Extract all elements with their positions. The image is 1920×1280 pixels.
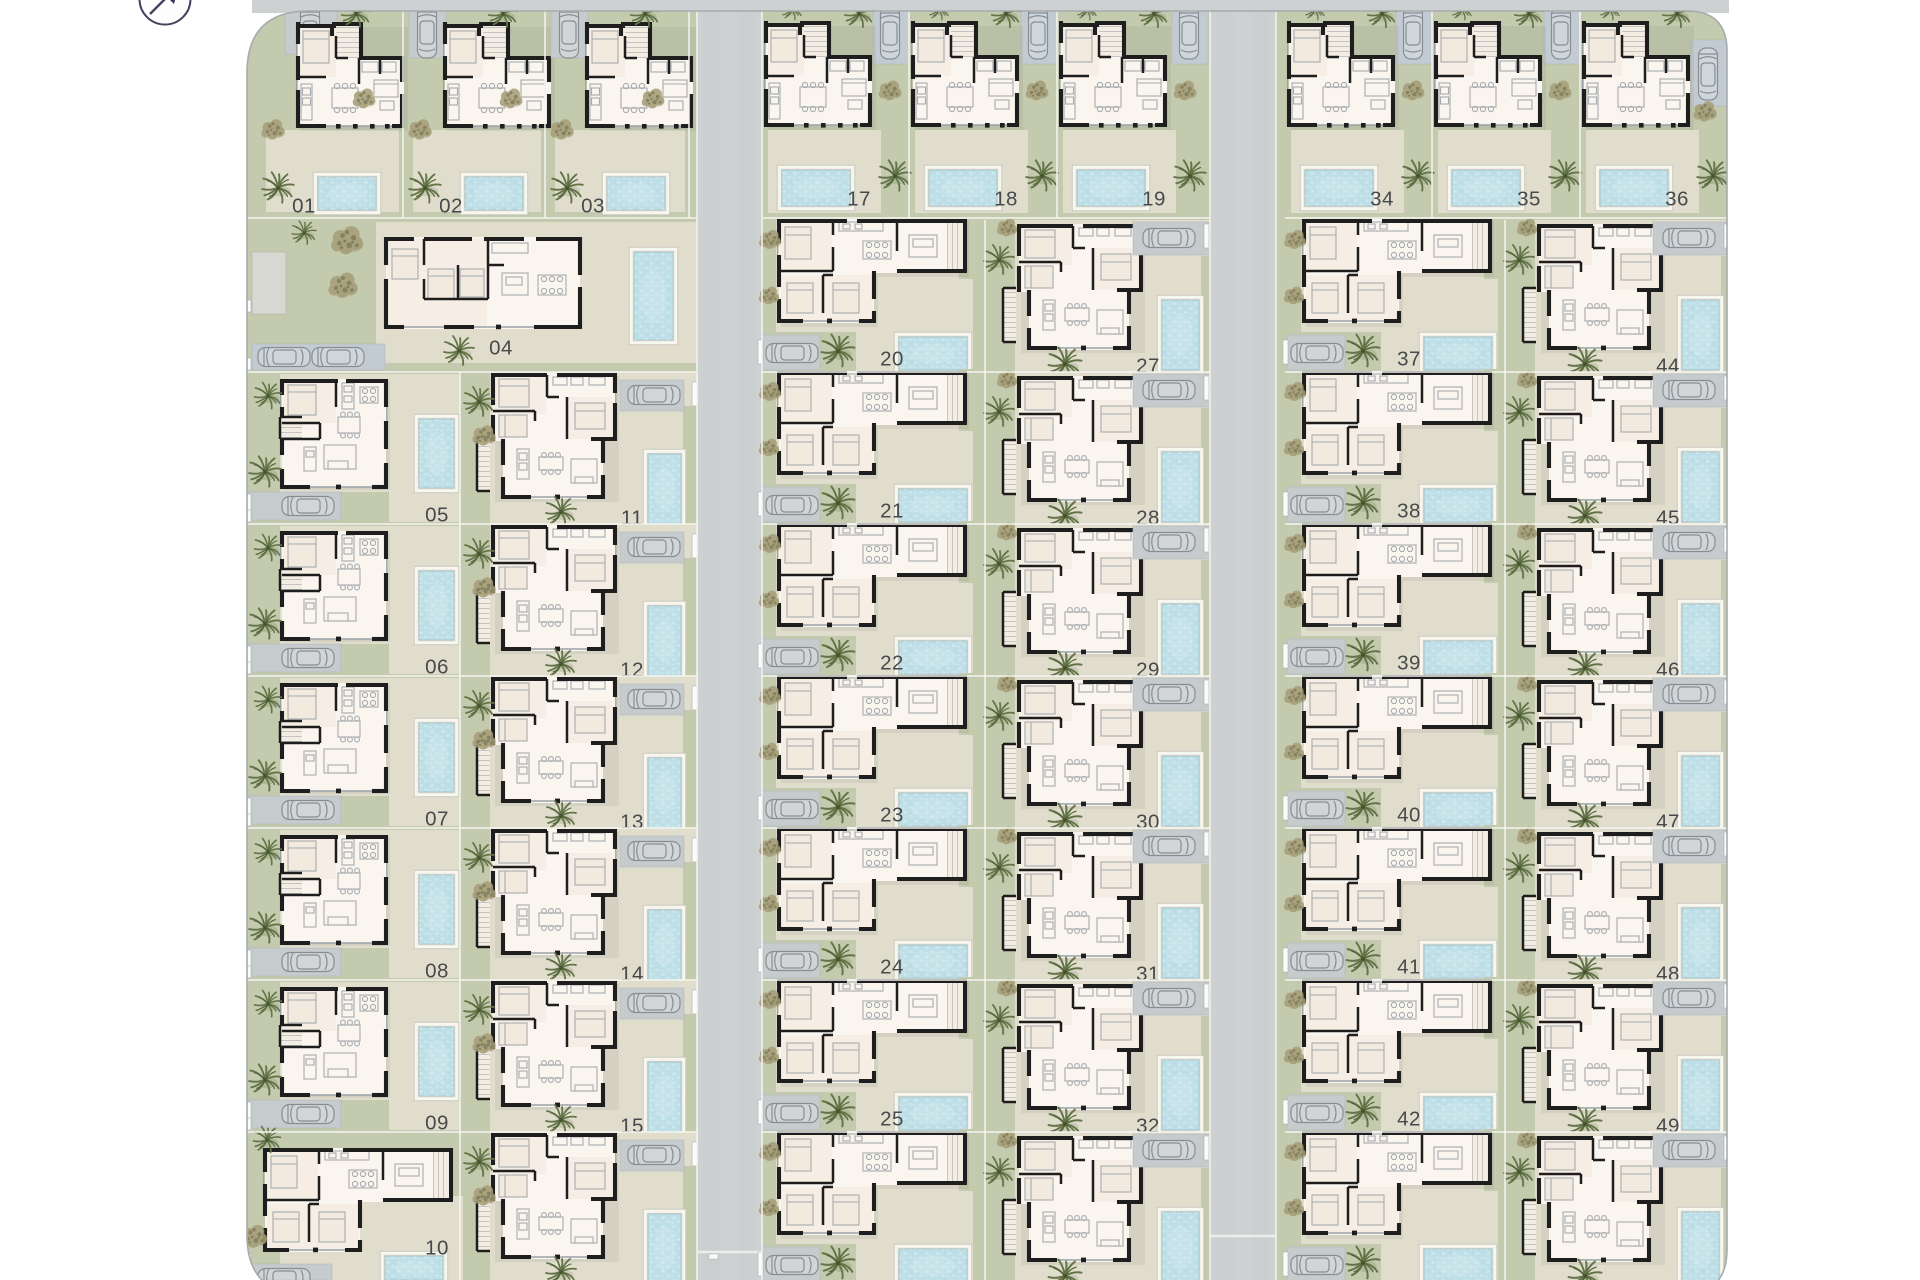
svg-text:06: 06 xyxy=(425,656,449,679)
svg-text:35: 35 xyxy=(1517,188,1541,211)
svg-text:19: 19 xyxy=(1142,188,1166,211)
svg-text:41: 41 xyxy=(1397,956,1421,979)
svg-text:21: 21 xyxy=(880,500,904,523)
svg-text:09: 09 xyxy=(425,1112,449,1135)
svg-text:01: 01 xyxy=(292,195,316,218)
svg-text:04: 04 xyxy=(489,337,513,360)
svg-text:34: 34 xyxy=(1370,188,1394,211)
svg-text:22: 22 xyxy=(880,652,904,675)
svg-text:02: 02 xyxy=(439,195,463,218)
svg-text:37: 37 xyxy=(1397,348,1421,371)
svg-text:38: 38 xyxy=(1397,500,1421,523)
svg-text:20: 20 xyxy=(880,348,904,371)
svg-text:36: 36 xyxy=(1665,188,1689,211)
svg-text:23: 23 xyxy=(880,804,904,827)
svg-text:42: 42 xyxy=(1397,1108,1421,1131)
svg-text:03: 03 xyxy=(581,195,605,218)
svg-text:39: 39 xyxy=(1397,652,1421,675)
svg-text:18: 18 xyxy=(994,188,1018,211)
svg-text:17: 17 xyxy=(847,188,871,211)
svg-text:05: 05 xyxy=(425,504,449,527)
svg-text:08: 08 xyxy=(425,960,449,983)
svg-text:25: 25 xyxy=(880,1108,904,1131)
svg-text:10: 10 xyxy=(425,1237,449,1260)
svg-text:07: 07 xyxy=(425,808,449,831)
svg-text:40: 40 xyxy=(1397,804,1421,827)
svg-text:24: 24 xyxy=(880,956,904,979)
